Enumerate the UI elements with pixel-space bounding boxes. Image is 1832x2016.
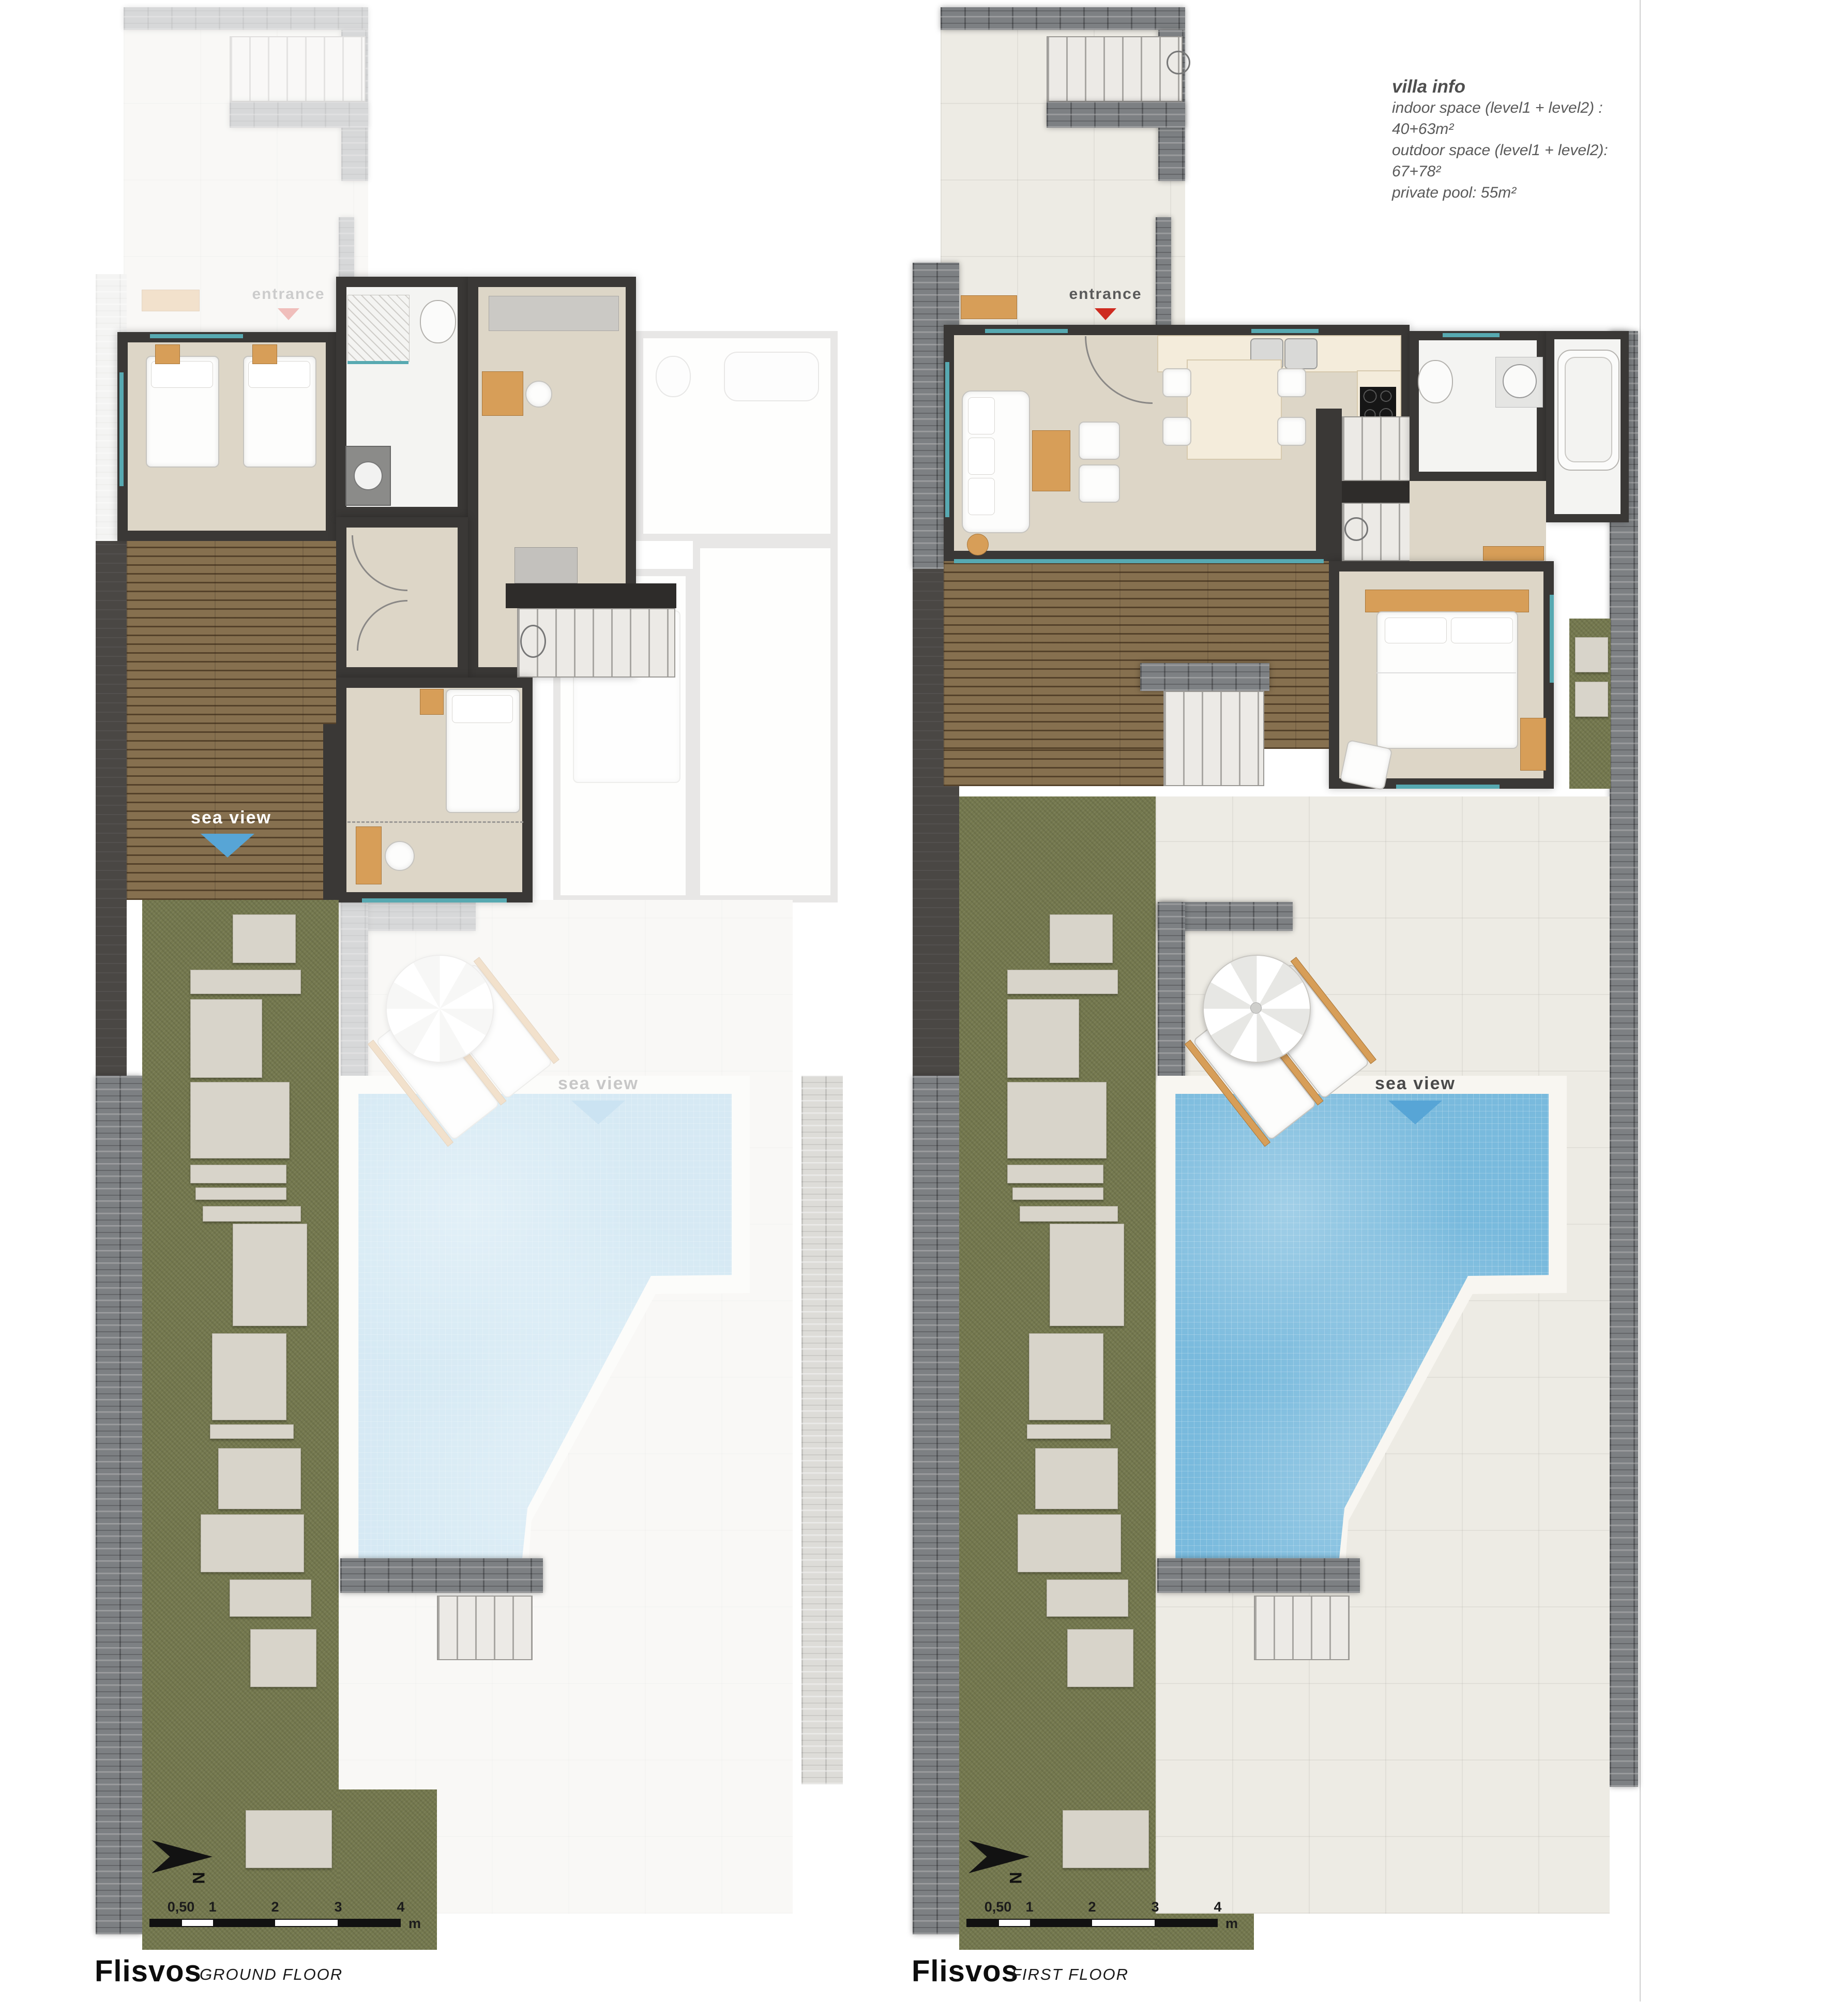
scale-label: 2 — [1071, 1899, 1113, 1915]
paver — [1007, 1082, 1107, 1159]
scale-unit-label: m — [404, 1916, 425, 1932]
stair-symbol — [1167, 51, 1190, 74]
desk — [356, 826, 382, 884]
stone-wall — [1610, 331, 1638, 1787]
sea-view-arrow-icon — [1388, 1101, 1442, 1124]
pillow — [151, 361, 213, 388]
paver — [233, 1224, 307, 1326]
scale-label: 2 — [254, 1899, 296, 1915]
shower-glass — [347, 361, 408, 364]
paver — [1575, 637, 1608, 672]
window — [119, 372, 124, 486]
paver — [1027, 1424, 1111, 1439]
north-label: N — [182, 1865, 208, 1891]
scale-label: 3 — [317, 1899, 359, 1915]
plan-subtitle: FIRST FLOOR — [1011, 1965, 1129, 1984]
sofa-cushion — [968, 397, 995, 434]
paver — [246, 1810, 332, 1868]
dining-chair — [1162, 368, 1191, 397]
wall-segment — [323, 724, 341, 902]
stone-wall — [1157, 1558, 1360, 1593]
scale-label: 4 — [380, 1899, 421, 1915]
armchair — [1079, 464, 1120, 503]
boundary-wall — [96, 541, 127, 1076]
sliding-door — [954, 559, 1324, 563]
paver — [210, 1424, 294, 1439]
paver — [218, 1448, 301, 1509]
scale-label: 1 — [1009, 1899, 1050, 1915]
stone-wall — [340, 1558, 543, 1593]
dashed-line — [347, 821, 523, 823]
shower — [347, 295, 410, 362]
sea-view-label: sea view — [1364, 1074, 1467, 1092]
ghost-neighbor-room — [693, 541, 838, 902]
ghost-sea-view-arrow-icon — [571, 1101, 625, 1124]
garden-stairs — [437, 1596, 533, 1660]
umbrella-pole — [1250, 1002, 1262, 1014]
washbasin-bowl — [354, 461, 383, 490]
paver — [190, 1082, 290, 1159]
paver — [230, 1579, 311, 1617]
paver — [233, 914, 296, 963]
scale-bar — [966, 1919, 1218, 1927]
paver — [195, 1187, 286, 1200]
entry-stairs — [1047, 36, 1183, 102]
stone-wall — [913, 1076, 959, 1934]
plan-subtitle: GROUND FLOOR — [200, 1965, 343, 1984]
toilet — [420, 300, 456, 343]
desk-chair — [385, 841, 415, 871]
paver — [190, 999, 262, 1078]
sofa-cushion — [968, 438, 995, 475]
stone-wall — [1156, 217, 1171, 334]
paver — [190, 1165, 286, 1183]
ghost-bench — [142, 290, 200, 311]
pillow — [452, 695, 513, 723]
ghost-toilet — [656, 356, 691, 397]
window — [945, 362, 949, 517]
stone-wall — [1140, 663, 1269, 691]
deck-stairs — [1163, 691, 1264, 786]
dining-table — [1187, 359, 1282, 460]
headboard — [1365, 590, 1529, 612]
paver — [1050, 914, 1113, 963]
desk-chair — [525, 381, 552, 408]
washbasin-bowl — [1503, 364, 1537, 398]
entrance-label: entrance — [1064, 285, 1147, 304]
window — [362, 898, 507, 902]
paver — [1047, 1579, 1128, 1617]
window — [1396, 785, 1500, 789]
coffee-table — [1032, 430, 1070, 491]
bed-fold-line — [1376, 672, 1516, 673]
stone-wall — [941, 7, 1185, 30]
paver — [1007, 999, 1079, 1078]
stair-symbol — [520, 625, 546, 658]
armchair — [1079, 422, 1120, 460]
paver — [1035, 1448, 1118, 1509]
scale-label: 4 — [1197, 1899, 1238, 1915]
ghost-sea-view-label: sea view — [547, 1074, 650, 1092]
window — [1443, 333, 1500, 337]
side-stool — [967, 534, 989, 555]
paver — [250, 1629, 316, 1687]
paver — [1020, 1206, 1118, 1222]
paver — [1063, 1810, 1149, 1868]
ghost-bathtub — [724, 352, 819, 401]
window — [985, 329, 1068, 333]
scale-label: 3 — [1134, 1899, 1176, 1915]
paver — [201, 1514, 304, 1572]
ghost-entrance-label: entrance — [247, 285, 330, 304]
villa-info: villa info indoor space (level1 + level2… — [1392, 77, 1635, 203]
stone-wall — [801, 1076, 843, 1784]
paver — [1007, 1165, 1103, 1183]
window — [1251, 329, 1319, 333]
dining-chair — [1162, 417, 1191, 446]
paver — [1012, 1187, 1103, 1200]
ghost-entrance-arrow-icon — [278, 308, 299, 320]
entrance-arrow-icon — [1095, 308, 1116, 320]
wall-segment — [1316, 409, 1342, 561]
garden-stairs — [1254, 1596, 1350, 1660]
villa-info-line: private pool: 55m² — [1392, 182, 1635, 203]
sea-view-arrow-icon — [201, 834, 254, 857]
paver — [1018, 1514, 1121, 1572]
sea-view-label: sea view — [179, 808, 283, 826]
wardrobe — [489, 296, 619, 331]
paver — [1050, 1224, 1124, 1326]
scale-bar — [149, 1919, 401, 1927]
paver — [1067, 1629, 1133, 1687]
ghost-umbrella-icon — [386, 955, 494, 1063]
paver — [1007, 970, 1118, 994]
paver — [203, 1206, 301, 1222]
scale-unit-label: m — [1221, 1916, 1242, 1932]
villa-info-line: outdoor space (level1 + level2): 67+78² — [1392, 140, 1635, 182]
stone-wall — [124, 7, 368, 30]
wooden-deck — [944, 561, 1329, 749]
bathtub-inner — [1565, 357, 1612, 462]
window — [150, 334, 243, 338]
stair-closet — [514, 547, 578, 583]
stone-wall — [1158, 902, 1185, 1079]
villa-info-title: villa info — [1392, 77, 1635, 97]
stone-wall — [1047, 102, 1185, 128]
plan-title: Flisvos — [95, 1954, 202, 1989]
bench — [961, 295, 1017, 319]
pillow — [1385, 618, 1447, 643]
sofa-cushion — [968, 478, 995, 515]
stone-wall — [230, 102, 368, 128]
paver — [190, 970, 301, 994]
floor-plan-sheet: entrance sea view — [0, 0, 1832, 2016]
paver — [1575, 682, 1608, 717]
pillow — [1451, 618, 1513, 643]
nightstand — [420, 689, 444, 715]
stair-landing — [506, 583, 676, 608]
scale-label: 1 — [192, 1899, 233, 1915]
plan-title: Flisvos — [912, 1954, 1019, 1989]
pillow — [248, 361, 310, 388]
dining-chair — [1277, 368, 1306, 397]
nightstand — [155, 344, 180, 364]
shelf — [1483, 546, 1544, 561]
paver — [212, 1333, 286, 1420]
stone-wall — [96, 1076, 142, 1934]
side-table — [1520, 718, 1546, 771]
ghost-entry-stairs — [230, 36, 366, 102]
nightstand — [252, 344, 277, 364]
toilet — [1418, 360, 1453, 403]
dining-chair — [1277, 417, 1306, 446]
villa-info-line: indoor space (level1 + level2) : 40+63m² — [1392, 97, 1635, 140]
window — [1550, 595, 1554, 683]
desk — [482, 371, 523, 416]
stair-symbol — [1344, 517, 1368, 541]
kitchen-sink — [1284, 338, 1318, 369]
stone-wall — [341, 902, 368, 1079]
paver — [1029, 1333, 1103, 1420]
north-label: N — [999, 1865, 1025, 1891]
